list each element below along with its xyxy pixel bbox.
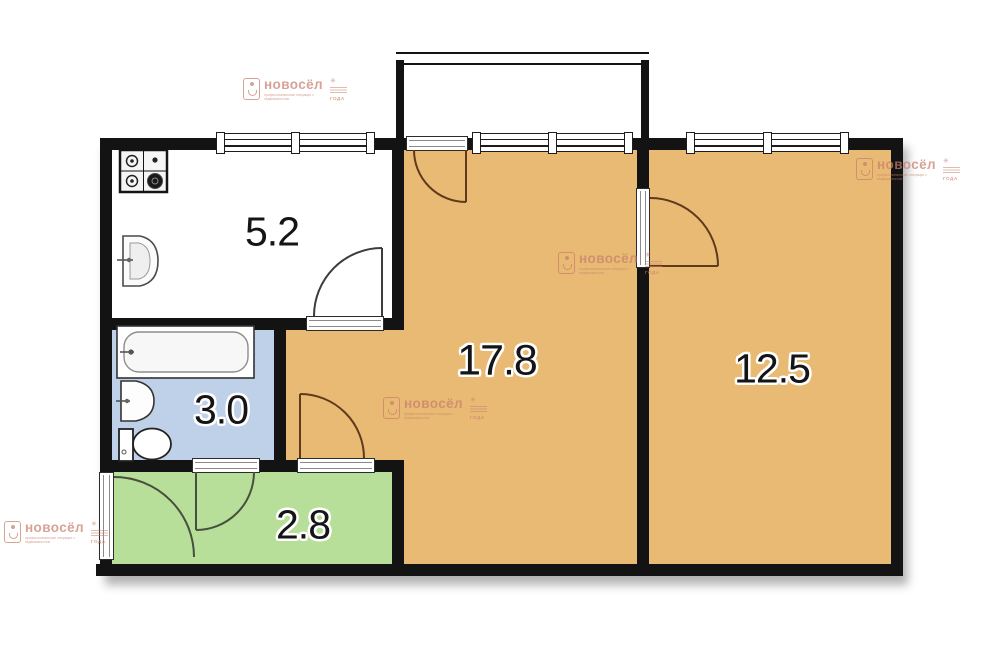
watermark: новосёл профессиональные операции с недв… [383, 397, 492, 421]
award-label: ГОДА [330, 96, 345, 101]
brand-name: новосёл [404, 397, 466, 410]
room-label-hallway: 2.8 [276, 502, 330, 549]
wall-balcony-right [641, 60, 649, 144]
bedroom-window [686, 133, 848, 152]
bathroom-door-opening [192, 458, 260, 473]
award-label: ГОДА [91, 539, 106, 544]
living-room-door-opening [297, 458, 375, 473]
brand-tagline: профессиональные операции с недвижимость… [404, 412, 466, 421]
award-mark-icon: ✳ [91, 521, 97, 528]
kitchen-door-opening [306, 316, 384, 331]
brand-tagline: профессиональные операции с недвижимость… [877, 173, 939, 182]
award-label: ГОДА [645, 270, 660, 275]
brand-logo-icon [383, 397, 400, 419]
brand-logo-icon [243, 78, 260, 100]
award-small-text [330, 87, 347, 95]
wall-bottom [96, 564, 903, 576]
bathroom-floor [106, 324, 280, 466]
watermark: новосёл профессиональные операции с недв… [243, 78, 352, 102]
wall-hallway-right [392, 460, 404, 576]
brand-logo-icon [856, 158, 873, 180]
balcony-railing [396, 52, 649, 65]
brand-name: новосёл [264, 78, 326, 91]
award-mark-icon: ✳ [943, 158, 949, 165]
room-label-bathroom: 3.0 [194, 387, 248, 434]
brand-tagline: профессиональные операции с недвижимость… [264, 93, 326, 102]
balcony-window [472, 133, 632, 152]
room-label-bedroom: 12.5 [734, 346, 810, 393]
award-label: ГОДА [943, 176, 958, 181]
kitchen-window [216, 133, 374, 152]
brand-logo-icon [558, 252, 575, 274]
brand-name: новосёл [579, 252, 641, 265]
award-small-text [470, 406, 487, 414]
award-mark-icon: ✳ [330, 78, 336, 85]
wall-right [891, 138, 903, 576]
wall-bathroom-right [274, 318, 286, 472]
brand-name: новосёл [25, 521, 87, 534]
award-mark-icon: ✳ [645, 252, 651, 259]
award-mark-icon: ✳ [470, 397, 476, 404]
hallway-floor [106, 466, 398, 570]
living-room-floor-extension [280, 324, 404, 466]
watermark: новосёл профессиональные операции с недв… [4, 521, 113, 545]
room-label-living-room: 17.8 [457, 337, 537, 386]
brand-logo-icon [4, 521, 21, 543]
balcony-door-opening [406, 136, 468, 151]
wall-kitchen-right [392, 138, 404, 330]
brand-tagline: профессиональные операции с недвижимость… [579, 267, 641, 276]
award-small-text [943, 167, 960, 175]
entry-door-opening [99, 472, 114, 560]
room-label-kitchen: 5.2 [245, 209, 299, 256]
watermark: новосёл профессиональные операции с недв… [558, 252, 667, 276]
brand-name: новосёл [877, 158, 939, 171]
award-small-text [645, 261, 662, 269]
brand-tagline: профессиональные операции с недвижимость… [25, 536, 87, 545]
award-label: ГОДА [470, 415, 485, 420]
floor-plan: 5.2 3.0 2.8 17.8 12.5 новосёл профессион… [0, 0, 1000, 667]
award-small-text [91, 530, 108, 538]
balcony-floor [400, 60, 643, 144]
wall-balcony-left [396, 60, 404, 144]
watermark: новосёл профессиональные операции с недв… [856, 158, 965, 182]
